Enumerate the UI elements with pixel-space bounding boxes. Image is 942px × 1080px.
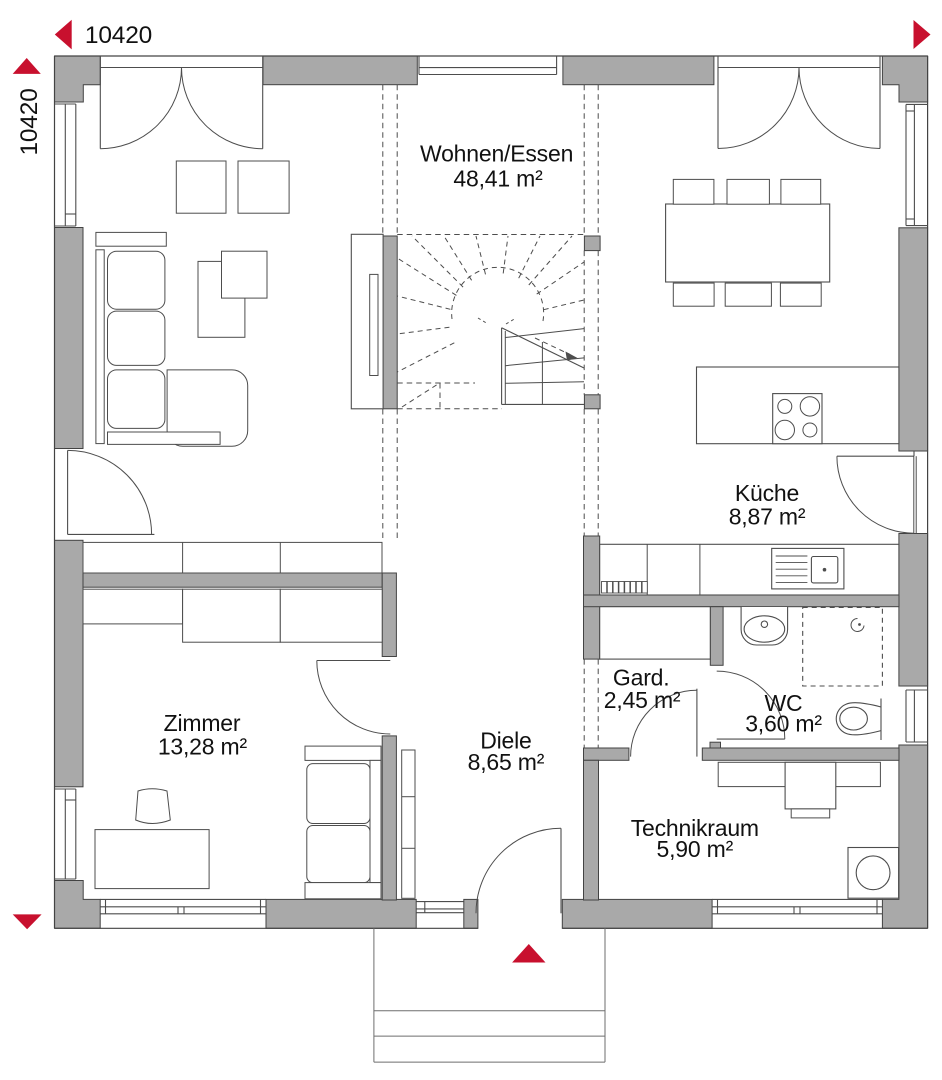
svg-text:5,90 m²: 5,90 m² — [657, 836, 734, 862]
svg-text:48,41 m²: 48,41 m² — [453, 166, 543, 192]
svg-text:10420: 10420 — [16, 88, 43, 155]
svg-text:Wohnen/Essen: Wohnen/Essen — [420, 141, 573, 167]
svg-text:10420: 10420 — [85, 22, 152, 49]
svg-text:2,45 m²: 2,45 m² — [604, 687, 681, 713]
svg-text:3,60 m²: 3,60 m² — [745, 711, 822, 737]
svg-text:13,28 m²: 13,28 m² — [158, 734, 248, 760]
svg-text:Zimmer: Zimmer — [164, 710, 241, 736]
svg-text:8,65 m²: 8,65 m² — [468, 749, 545, 775]
svg-text:8,87 m²: 8,87 m² — [729, 504, 806, 530]
svg-text:Küche: Küche — [735, 480, 799, 506]
